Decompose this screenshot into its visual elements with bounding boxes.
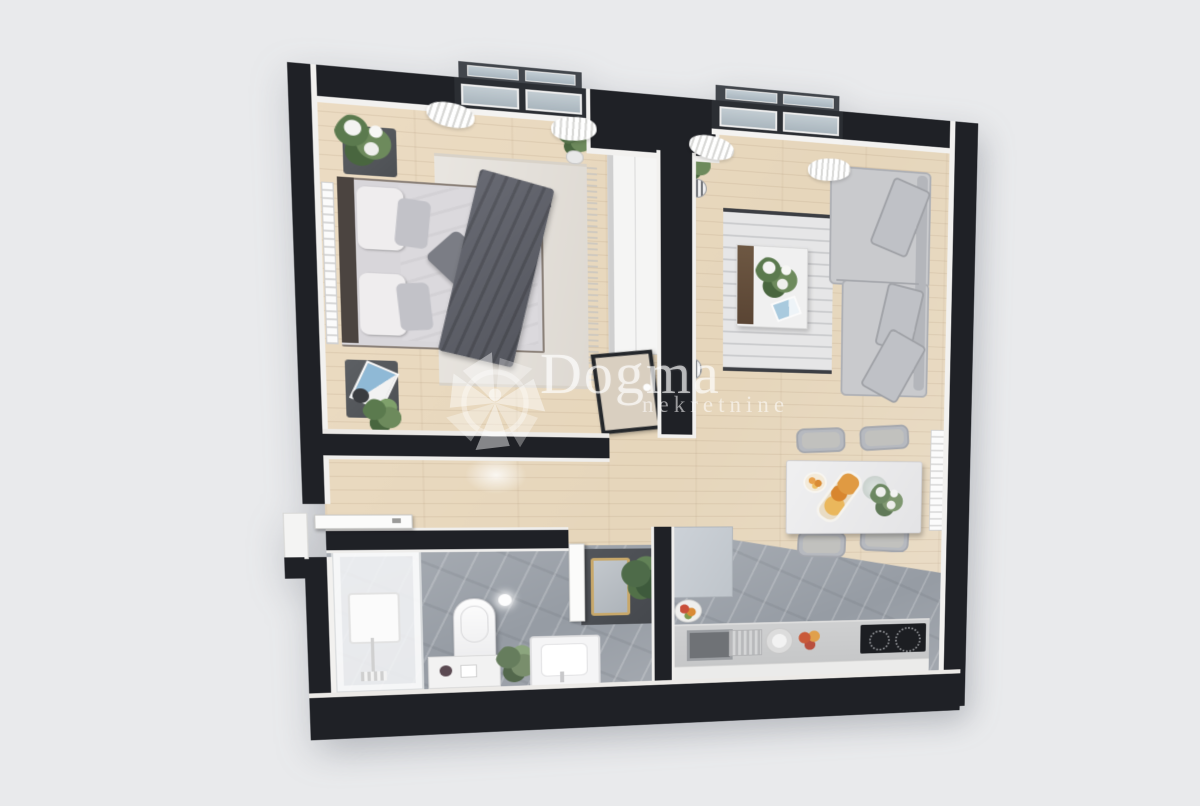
bouquet-icon: [754, 254, 799, 300]
double-bed: [337, 176, 545, 353]
basin-bowl: [541, 643, 588, 677]
dining-table: [786, 460, 923, 534]
magazine-icon: [771, 296, 802, 323]
dining-chair: [797, 531, 847, 558]
bedroom-door-leaf: [591, 350, 663, 435]
fruits-icon: [796, 628, 823, 653]
floor-plan-projected: [287, 62, 973, 717]
partition-wall: [656, 150, 696, 438]
induction-hob-icon: [860, 623, 926, 653]
apartment-floorplan-render: Dogma nekretnine: [0, 0, 1200, 806]
shower-cabin: [331, 549, 425, 694]
coffee-table-wood: [737, 245, 753, 324]
shower-faucet-icon: [361, 671, 387, 681]
plant-pot: [566, 150, 584, 165]
entry-stub-wall: [284, 557, 305, 578]
toiletry-icon: [440, 665, 453, 676]
shower-panel: [348, 592, 401, 644]
washbasin: [530, 635, 601, 688]
bedroom-rug-fringe: [587, 167, 599, 381]
sink-icon: [687, 629, 733, 661]
corner-sofa: [828, 165, 928, 394]
small-plant-icon: [361, 396, 404, 434]
bath-cabinet: [428, 655, 501, 689]
window-glass: [719, 106, 777, 131]
window-glass: [783, 112, 839, 136]
pastry-plate-icon: [803, 472, 827, 493]
hallway-light-glow: [464, 456, 527, 494]
dish-drainer-icon: [729, 629, 762, 656]
window-glass: [525, 89, 582, 115]
dining-chair: [859, 424, 910, 451]
plate-icon: [766, 628, 793, 655]
bedroom-south-wall: [322, 429, 609, 462]
toilet-seat-line: [460, 605, 489, 643]
pillow: [396, 283, 434, 331]
entry-step: [283, 513, 309, 560]
entry-door-leaf: [314, 514, 413, 529]
coffee-table: [736, 244, 808, 329]
bathroom-north-wall: [326, 527, 569, 553]
dining-chair: [796, 427, 846, 453]
hob-ring: [895, 627, 921, 653]
toilet-icon: [453, 598, 497, 663]
door-handle-icon: [392, 518, 401, 523]
window-glass: [461, 84, 519, 110]
toiletry-icon: [460, 664, 477, 677]
bathroom-door-leaf: [569, 544, 586, 622]
hob-ring: [869, 630, 890, 651]
basin-faucet-icon: [560, 671, 564, 682]
bathroom-east-wall: [651, 527, 675, 681]
kitchen-tall-cabinet: [670, 526, 733, 598]
door-knob: [643, 383, 652, 391]
wardrobe: [607, 151, 659, 355]
wall-left-lower: [304, 557, 336, 694]
flower-branches-icon: [869, 481, 905, 517]
pillow: [394, 197, 431, 249]
curtain-icon: [550, 117, 598, 142]
wardrobe-seam: [634, 154, 636, 353]
